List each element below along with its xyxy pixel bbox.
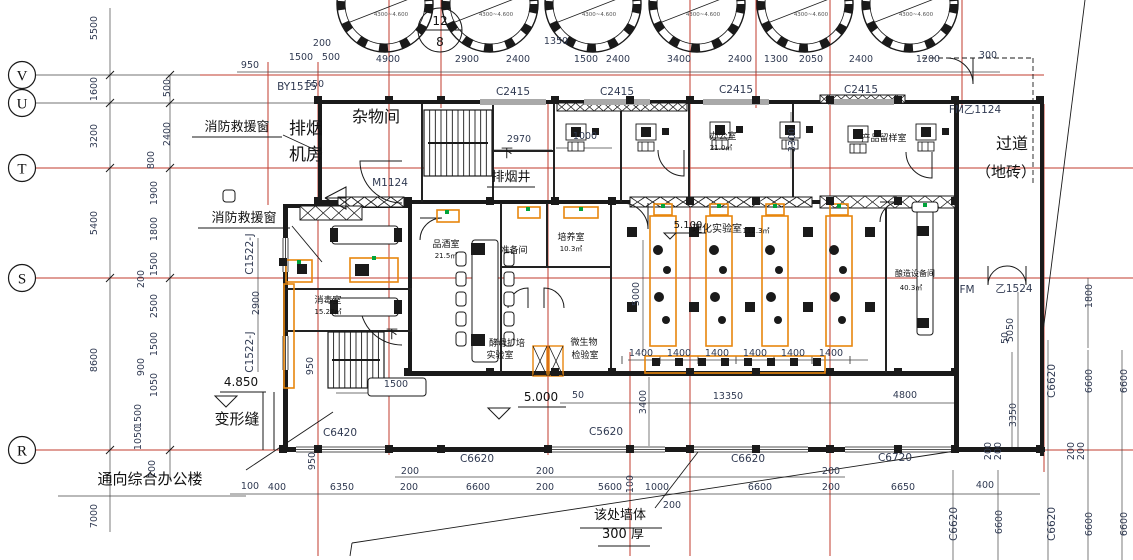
dim-label: 5400	[89, 211, 100, 235]
dim-label: 1800	[1084, 284, 1095, 308]
dim-label: 1400	[743, 348, 767, 359]
equipment-dot	[765, 245, 775, 255]
column	[826, 96, 834, 104]
partition-wall	[610, 203, 612, 373]
column	[951, 368, 959, 376]
dim-label: 3300	[787, 128, 798, 152]
equipment-black	[297, 264, 307, 274]
dim-label: 200	[313, 38, 331, 49]
dim-label: 200	[1076, 442, 1087, 460]
column	[551, 368, 559, 376]
equipment-dot	[710, 292, 720, 302]
dim-label: 200	[993, 442, 1004, 460]
dim-label: 6600	[1084, 369, 1095, 393]
desk-chair	[568, 142, 584, 151]
desk-chair	[918, 142, 934, 151]
equipment-dot	[718, 316, 726, 324]
dim-label: 200	[400, 482, 418, 493]
tank-annotation: 4300~4.600	[479, 12, 514, 18]
window-label: C6620	[1046, 507, 1058, 541]
column	[314, 96, 322, 104]
column	[437, 96, 445, 104]
dim-label: 100	[625, 475, 636, 493]
column	[951, 197, 959, 205]
dim-label: 1500	[149, 252, 160, 276]
column	[551, 197, 559, 205]
equipment-black	[767, 358, 775, 366]
window-label: C6420	[323, 427, 357, 439]
column	[404, 368, 412, 376]
column	[686, 445, 694, 453]
room-label: 21.0㎡	[710, 144, 733, 152]
equipment-dot	[830, 292, 840, 302]
partition-wall	[283, 288, 412, 290]
detail-bubble-bottom: 8	[436, 35, 444, 49]
dim-label: 5500	[89, 16, 100, 40]
window-label: C6720	[878, 452, 912, 464]
column	[752, 197, 760, 205]
dim-label: 1500	[149, 332, 160, 356]
furniture	[332, 298, 398, 316]
window-label: C6620	[1046, 364, 1058, 398]
column	[894, 96, 902, 104]
room-label: 通向综合办公楼	[97, 470, 202, 488]
column	[544, 445, 552, 453]
dim-label: 3200	[89, 124, 100, 148]
column	[486, 368, 494, 376]
dim-label: 200	[663, 500, 681, 511]
window-label: C6620	[948, 507, 960, 541]
dim-label: 900	[136, 358, 147, 376]
dim-label: 2400	[849, 54, 873, 65]
tank-annotation: 4300~4.600	[582, 12, 617, 18]
room-label: 办公室	[709, 130, 736, 142]
equipment-dot	[829, 245, 839, 255]
partition-wall	[620, 104, 622, 202]
dim-label: 4900	[376, 54, 400, 65]
window-label: C2415	[844, 84, 878, 96]
grid-bubble-label: V	[17, 69, 28, 85]
dim-label: 1600	[89, 77, 100, 101]
desk-chair	[638, 142, 654, 151]
dim-label: 7000	[89, 504, 100, 528]
grid-bubble-label: S	[18, 272, 26, 288]
equipment-black	[471, 334, 485, 346]
equipment-dot	[775, 266, 783, 274]
dim-label: 2400	[728, 54, 752, 65]
equipment-dot	[766, 292, 776, 302]
column	[752, 368, 760, 376]
green-indicator	[526, 207, 530, 211]
room-label: （地砖）	[976, 163, 1036, 181]
green-indicator	[837, 204, 841, 208]
desk-chair	[850, 144, 866, 153]
dim-label: 500	[162, 79, 173, 97]
room-label: 消毒室	[314, 294, 341, 306]
equipment-black	[917, 226, 929, 236]
green-indicator	[923, 203, 927, 207]
room-label: 排烟井	[491, 170, 530, 185]
equipment-dot	[839, 266, 847, 274]
partition-wall	[500, 266, 612, 268]
partition-wall	[885, 207, 887, 373]
room-label: 机房	[289, 145, 323, 165]
equipment-dot	[838, 316, 846, 324]
equipment-black	[744, 358, 752, 366]
dim-label: 200	[822, 482, 840, 493]
dim-label: 1500	[133, 404, 144, 428]
green-indicator	[579, 207, 583, 211]
furniture	[332, 226, 398, 244]
dim-label: 6650	[891, 482, 915, 493]
window-label: 乙1524	[995, 283, 1033, 295]
column	[385, 96, 393, 104]
column	[951, 96, 959, 104]
room-label: 酵母扩培	[489, 337, 525, 349]
column	[626, 445, 634, 453]
partition-wall	[553, 104, 555, 202]
dim-label: 1500	[289, 52, 313, 63]
room-label: 过道	[996, 134, 1028, 153]
column	[894, 368, 902, 376]
room-label: 产品留样室	[861, 132, 906, 144]
room-label: 消防救援窗	[204, 119, 269, 135]
column	[404, 197, 412, 205]
dim-label: 5600	[598, 482, 622, 493]
window-label: FM	[959, 284, 974, 296]
column	[279, 258, 287, 266]
floor-plan-canvas: 4300~4.6004300~4.6004300~4.6004300~4.600…	[0, 0, 1133, 560]
equipment-black	[675, 358, 683, 366]
window-label: C1522-J	[244, 233, 256, 275]
room-label: 变形缝	[214, 410, 259, 428]
window-label: C2415	[719, 84, 753, 96]
column	[608, 368, 616, 376]
dim-label: 400	[268, 482, 286, 493]
tank-annotation: 4300~4.600	[899, 12, 934, 18]
room-label: 排烟	[289, 119, 323, 139]
equipment-black	[813, 358, 821, 366]
room-label: 21.5㎡	[435, 252, 458, 260]
pillar	[627, 227, 637, 237]
column	[1036, 96, 1044, 104]
green-indicator	[445, 210, 449, 214]
column	[752, 96, 760, 104]
room-label: 品酒室	[432, 238, 459, 250]
room-label: 实验室	[486, 349, 513, 361]
equipment-black	[736, 126, 743, 133]
dim-label: 4800	[893, 390, 917, 401]
equipment-black	[662, 128, 669, 135]
column	[826, 445, 834, 453]
dim-label: 8600	[89, 348, 100, 372]
column	[486, 197, 494, 205]
column	[686, 197, 694, 205]
pillar	[689, 302, 699, 312]
dim-label: 2900	[251, 291, 262, 315]
chair	[504, 312, 514, 326]
green-indicator	[297, 260, 301, 264]
dim-label: 2400	[606, 54, 630, 65]
dim-label: 2400	[162, 122, 173, 146]
dim-label: 2050	[799, 54, 823, 65]
column	[826, 368, 834, 376]
column	[385, 445, 393, 453]
dim-label: 200	[822, 466, 840, 477]
dim-label: 2970	[507, 134, 531, 145]
dim-label: 1800	[149, 217, 160, 241]
dim-label: 50	[572, 390, 584, 401]
column	[826, 197, 834, 205]
equipment-dot	[653, 245, 663, 255]
room-label: 培养室	[557, 231, 584, 243]
elevation-label: 4.850	[224, 375, 258, 389]
dim-label: 1050	[149, 373, 160, 397]
window-label: C6620	[731, 453, 765, 465]
room-label: 40.3㎡	[900, 284, 923, 292]
window-label: C2415	[600, 86, 634, 98]
tank-annotation: 4300~4.600	[686, 12, 721, 18]
dim-label: 3400	[638, 390, 649, 414]
wall	[954, 100, 959, 452]
column	[608, 197, 616, 205]
dim-label: 950	[305, 357, 316, 375]
dim-label: 500	[322, 52, 340, 63]
chair	[456, 332, 466, 346]
room-label: 下	[501, 146, 513, 160]
detail-bubble-top: 12	[432, 14, 447, 28]
dim-label: 200	[536, 482, 554, 493]
equipment-black	[330, 228, 338, 242]
dim-label: 1400	[705, 348, 729, 359]
room-label: 112.3㎡	[742, 227, 769, 235]
room-label: 15.27㎡	[314, 308, 341, 316]
dim-label: 5000	[631, 282, 642, 306]
green-indicator	[661, 204, 665, 208]
dim-label: 300	[979, 50, 997, 61]
equipment-black	[355, 264, 369, 276]
dim-label: 100	[241, 481, 259, 492]
partition-wall	[546, 203, 548, 268]
elevation-label: 5.000	[524, 390, 558, 404]
window-label: BY1515	[277, 81, 317, 93]
dim-label: 6600	[748, 482, 772, 493]
window-label: C6620	[460, 453, 494, 465]
dim-label: 1400	[667, 348, 691, 359]
green-indicator	[372, 256, 376, 260]
equipment-black	[806, 126, 813, 133]
room-label: 10.3㎡	[560, 245, 583, 253]
window-label: C2415	[496, 86, 530, 98]
dim-label: 200	[136, 270, 147, 288]
chair	[456, 292, 466, 306]
dim-label: 400	[976, 480, 994, 491]
hatched-strip	[300, 206, 362, 220]
dim-label: 6600	[1084, 512, 1095, 536]
dim-label: 200	[401, 466, 419, 477]
equipment-black	[790, 358, 798, 366]
grid-bubble-label: T	[17, 162, 26, 178]
column	[894, 197, 902, 205]
dim-label: 13350	[713, 391, 743, 402]
equipment-dot	[663, 266, 671, 274]
dim-label: 2900	[455, 54, 479, 65]
dim-label: 6600	[1119, 512, 1130, 536]
column	[314, 197, 322, 205]
window-label: C5620	[589, 426, 623, 438]
dim-label: 950	[307, 452, 318, 470]
partition-wall	[421, 104, 423, 202]
chair	[456, 252, 466, 266]
dim-label: 200	[536, 466, 554, 477]
window-label: FM乙1124	[949, 104, 1002, 116]
equipment-black	[471, 243, 485, 255]
dim-label: 1500	[384, 379, 408, 390]
room-label: 下	[386, 327, 398, 341]
floor-plan-drawing: 4300~4.6004300~4.6004300~4.6004300~4.600…	[0, 0, 1133, 560]
room-label: 该处墙体	[594, 508, 646, 523]
dim-label: 6350	[330, 482, 354, 493]
pillar	[745, 302, 755, 312]
dim-label: 6600	[1119, 369, 1130, 393]
wall	[1040, 100, 1044, 456]
dim-label: 800	[146, 151, 157, 169]
chair	[456, 312, 466, 326]
equipment-dot	[662, 316, 670, 324]
dim-label: 1050	[133, 426, 144, 450]
dim-label: 1200	[916, 54, 940, 65]
column	[686, 96, 694, 104]
chair	[504, 292, 514, 306]
room-label: 300 厚	[602, 527, 644, 542]
dim-label: 2400	[506, 54, 530, 65]
dim-label: 3400	[667, 54, 691, 65]
column	[314, 445, 322, 453]
tank-annotation: 4300~4.600	[794, 12, 829, 18]
column	[551, 96, 559, 104]
room-label: 消防救援窗	[211, 210, 276, 226]
equipment-dot	[719, 266, 727, 274]
desk-monitor	[641, 127, 651, 137]
column	[686, 368, 694, 376]
dim-label: 1350	[544, 36, 568, 47]
partition-wall	[688, 104, 690, 202]
green-indicator	[773, 204, 777, 208]
elevation-label: 5.100	[674, 220, 703, 231]
room-label: 微生物	[570, 336, 597, 348]
desk-monitor	[921, 127, 931, 137]
dim-label: 50	[1000, 332, 1011, 344]
pillar	[865, 302, 875, 312]
room-label: 酿造设备间	[895, 268, 935, 278]
green-indicator	[717, 204, 721, 208]
column	[752, 445, 760, 453]
dim-label: 1000	[573, 131, 597, 142]
equipment-dot	[709, 245, 719, 255]
equipment-black	[394, 300, 402, 314]
equipment-black	[698, 358, 706, 366]
dim-label: 1000	[645, 482, 669, 493]
equipment-dot	[774, 316, 782, 324]
dim-label: 2500	[149, 294, 160, 318]
equipment-black	[942, 128, 949, 135]
window-label: M1124	[372, 177, 408, 189]
dim-label: 1400	[629, 348, 653, 359]
equipment-dot	[654, 292, 664, 302]
chair	[456, 272, 466, 286]
dim-label: 1400	[819, 348, 843, 359]
dim-label: 3350	[1008, 403, 1019, 427]
column	[1036, 445, 1044, 453]
room-label: 杂物间	[352, 107, 400, 126]
equipment-black	[917, 318, 929, 328]
equipment-black	[394, 228, 402, 242]
pillar	[803, 302, 813, 312]
dim-label: 1300	[764, 54, 788, 65]
equipment-black	[652, 358, 660, 366]
pillar	[803, 227, 813, 237]
grid-bubble-label: U	[17, 97, 28, 113]
dim-label: 950	[241, 60, 259, 71]
dim-label: 1900	[149, 181, 160, 205]
column	[279, 445, 287, 453]
dim-label: 6600	[994, 510, 1005, 534]
dim-label: 1500	[574, 54, 598, 65]
column	[437, 445, 445, 453]
tank-annotation: 4300~4.600	[374, 12, 409, 18]
room-label: 检验室	[571, 349, 598, 361]
room-label: 准备间	[500, 244, 527, 256]
dim-label: 1400	[781, 348, 805, 359]
pillar	[865, 227, 875, 237]
window-label: C1522-J	[244, 331, 256, 373]
dim-label: 6600	[466, 482, 490, 493]
grid-bubble-label: R	[17, 444, 27, 460]
chair	[504, 272, 514, 286]
equipment-black	[721, 358, 729, 366]
furniture	[223, 190, 235, 202]
